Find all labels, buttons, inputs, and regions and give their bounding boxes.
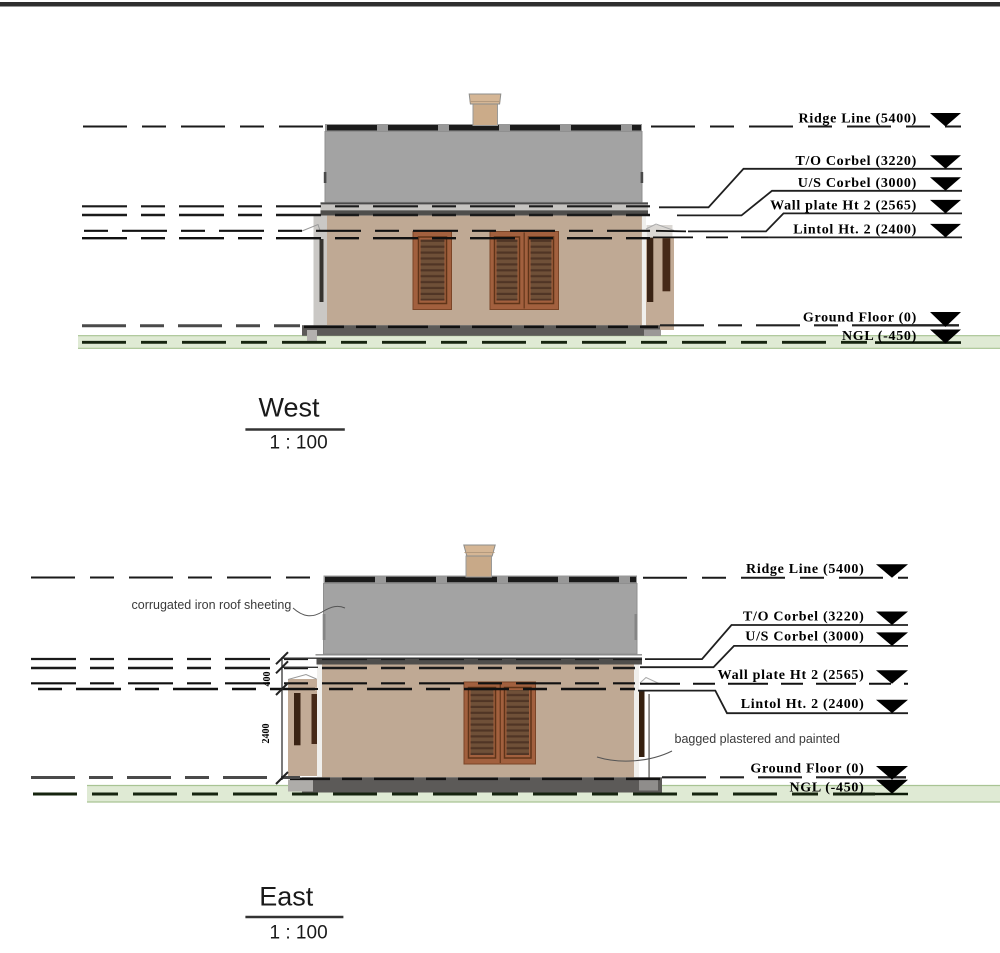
svg-text:Ridge Line (5400): Ridge Line (5400) bbox=[746, 562, 864, 577]
svg-text:Ground Floor (0): Ground Floor (0) bbox=[750, 762, 864, 777]
svg-text:Wall plate Ht 2 (2565): Wall plate Ht 2 (2565) bbox=[718, 668, 865, 683]
svg-text:T/O Corbel (3220): T/O Corbel (3220) bbox=[795, 154, 917, 169]
svg-text:West: West bbox=[258, 393, 320, 423]
svg-text:Wall plate Ht 2 (2565): Wall plate Ht 2 (2565) bbox=[770, 199, 917, 214]
svg-text:NGL (-450): NGL (-450) bbox=[789, 781, 864, 796]
svg-text:Ridge Line (5400): Ridge Line (5400) bbox=[799, 112, 917, 127]
svg-text:bagged plastered and painted: bagged plastered and painted bbox=[675, 732, 840, 746]
svg-text:Lintol Ht. 2 (2400): Lintol Ht. 2 (2400) bbox=[793, 223, 917, 238]
svg-text:2400: 2400 bbox=[261, 724, 272, 744]
svg-text:Lintol Ht. 2 (2400): Lintol Ht. 2 (2400) bbox=[741, 697, 865, 712]
svg-text:East: East bbox=[259, 882, 314, 912]
svg-text:1 : 100: 1 : 100 bbox=[270, 433, 328, 454]
svg-text:400: 400 bbox=[262, 672, 273, 687]
svg-text:NGL (-450): NGL (-450) bbox=[842, 329, 917, 344]
svg-text:1 : 100: 1 : 100 bbox=[270, 923, 328, 944]
svg-text:U/S Corbel (3000): U/S Corbel (3000) bbox=[798, 176, 917, 191]
svg-text:Ground Floor (0): Ground Floor (0) bbox=[803, 311, 917, 326]
svg-text:U/S Corbel (3000): U/S Corbel (3000) bbox=[745, 630, 864, 645]
svg-text:corrugated iron roof sheeting: corrugated iron roof sheeting bbox=[132, 598, 292, 612]
svg-text:T/O Corbel (3220): T/O Corbel (3220) bbox=[743, 610, 865, 625]
